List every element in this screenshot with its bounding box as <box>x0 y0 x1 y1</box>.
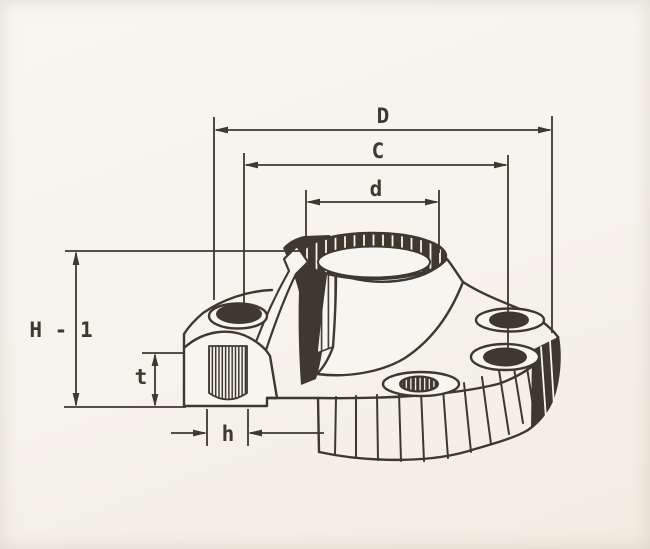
dimension-h <box>171 409 324 446</box>
arrowhead-left <box>244 162 258 169</box>
bolt-hole-upper-right <box>476 309 544 332</box>
bore-opening <box>318 247 430 278</box>
arrowhead-left <box>248 430 262 437</box>
bolt-hole-lower-right <box>471 344 539 370</box>
bolt-hole-bore <box>490 313 528 328</box>
bolt-hole-bore <box>484 349 526 366</box>
bolt-hole-bottom-front <box>383 372 459 396</box>
label-h: h <box>222 422 235 446</box>
arrowhead-right <box>193 430 207 437</box>
dimension-t <box>142 353 184 407</box>
arrowhead-down <box>73 393 80 407</box>
bolt-hole-bore <box>217 305 261 323</box>
drawing-sheet: D C d H - 1 t h <box>0 0 650 549</box>
section-step-edge <box>267 398 319 452</box>
arrowhead-down <box>152 394 159 407</box>
arrowhead-right <box>494 162 508 169</box>
label-D: D <box>377 104 390 128</box>
label-t: t <box>135 365 148 389</box>
arrowhead-left <box>306 199 320 206</box>
bolt-hole-top-left <box>209 304 267 329</box>
flange-technical-drawing: D C d H - 1 t h <box>0 0 650 549</box>
arrowhead-up <box>73 251 80 265</box>
flange-body <box>184 233 560 461</box>
label-H1: H - 1 <box>29 318 92 342</box>
arrowhead-up <box>152 353 159 366</box>
bolt-hole-bore-ticks <box>402 378 436 391</box>
arrowhead-right <box>538 127 552 134</box>
arrowhead-left <box>214 127 228 134</box>
label-d: d <box>370 177 383 201</box>
neck-top-opening <box>300 233 446 279</box>
bolt-hole-section-hatch <box>209 346 247 400</box>
arrowhead-right <box>425 199 439 206</box>
label-C: C <box>372 139 385 163</box>
